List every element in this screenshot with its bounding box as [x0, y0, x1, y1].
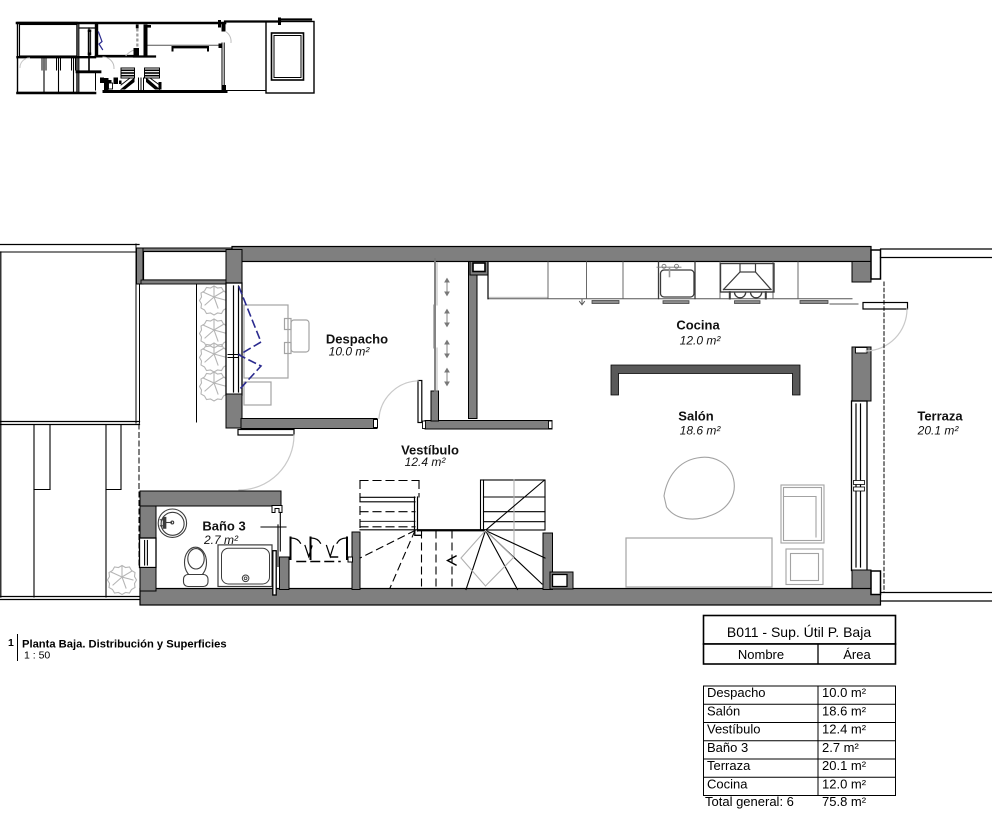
svg-text:Terraza: Terraza [707, 758, 751, 773]
svg-text:Cocina: Cocina [707, 776, 748, 791]
svg-text:1 : 50: 1 : 50 [24, 650, 50, 662]
svg-text:75.8 m²: 75.8 m² [822, 794, 867, 809]
svg-text:18.6 m²: 18.6 m² [822, 703, 867, 718]
svg-text:12.0 m²: 12.0 m² [822, 776, 867, 791]
svg-text:B011 - Sup. Útil P. Baja: B011 - Sup. Útil P. Baja [727, 624, 871, 640]
svg-text:2.7 m²: 2.7 m² [203, 533, 239, 547]
svg-text:1: 1 [8, 637, 14, 649]
svg-text:20.1 m²: 20.1 m² [822, 758, 867, 773]
svg-text:Baño 3: Baño 3 [707, 740, 748, 755]
svg-text:2.7 m²: 2.7 m² [822, 740, 860, 755]
svg-text:Nombre: Nombre [738, 647, 784, 662]
svg-text:Terraza: Terraza [917, 409, 963, 424]
svg-text:Baño 3: Baño 3 [202, 519, 245, 534]
svg-text:Vestíbulo: Vestíbulo [707, 722, 761, 737]
svg-text:12.0 m²: 12.0 m² [680, 334, 722, 348]
svg-text:10.0 m²: 10.0 m² [329, 345, 371, 359]
svg-text:12.4 m²: 12.4 m² [405, 455, 447, 469]
svg-text:Salón: Salón [678, 409, 713, 424]
svg-text:Área: Área [843, 647, 871, 662]
svg-text:Despacho: Despacho [707, 685, 766, 700]
svg-text:18.6 m²: 18.6 m² [680, 424, 722, 438]
svg-text:Total general: 6: Total general: 6 [705, 794, 794, 809]
svg-text:10.0 m²: 10.0 m² [822, 685, 867, 700]
svg-text:Cocina: Cocina [676, 318, 720, 333]
svg-text:Planta Baja. Distribución y Su: Planta Baja. Distribución y Superficies [22, 639, 227, 651]
svg-text:20.1 m²: 20.1 m² [917, 424, 960, 438]
svg-text:Salón: Salón [707, 703, 740, 718]
svg-text:12.4 m²: 12.4 m² [822, 722, 867, 737]
